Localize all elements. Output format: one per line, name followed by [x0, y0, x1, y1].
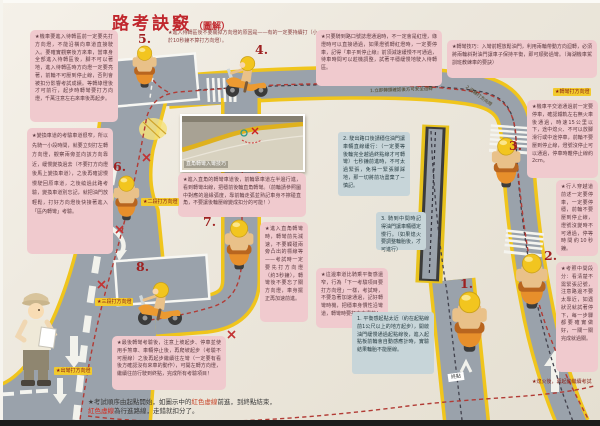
- label-signal-turn3: ★出彎打方向燈: [54, 367, 92, 375]
- scan-edge-top: [0, 0, 600, 3]
- page-title-main: 路考訣竅: [112, 14, 192, 34]
- note-balance-step3: 3. 騎到中間時記得油門讓車輛穩定慢行。（如果熄火要調整輪胎後，才可進行）: [376, 212, 426, 250]
- note-waiting-zone: ★機車要進入待轉區前一定要先打方向燈，不能沿橫向車道直接駛入。要確實觀察後方來車…: [30, 30, 118, 122]
- station-5: 5.: [138, 31, 151, 46]
- station-8: 8.: [136, 259, 149, 274]
- footer-note: ★考試順序由起點開始，如圖示中的紅色虛線前進，到終點結束， 紅色虛線為行進路線，…: [88, 398, 276, 417]
- scan-edge-left: [0, 0, 3, 426]
- note-balance-step1: 1. 平衡感起點太近（約在起點線前1公尺以上的地方起步），開啟油門緩慢通過起點線…: [352, 312, 434, 374]
- photo-inset-title: 直角轉彎入彎技巧: [184, 161, 228, 168]
- note-turning-technique: ★轉彎技巧：入彎前輕放鬆油門，利用兩輪帶動方向迴轉，必須將兩輪斜對油門讓車子保持…: [447, 40, 597, 78]
- footer-line-1: ★考試順序由起點開始，如圖示中的紅色虛線前進，到終點結束，: [88, 398, 276, 407]
- station-4: 4.: [255, 42, 268, 57]
- station-2: 2.: [544, 248, 557, 263]
- station-1: 1.: [460, 276, 473, 291]
- note-photo-caption: ★進入直角的轉彎車道後，前輪靠車道左半邊行進，看到轉彎出線，把穩前後輪直角轉彎。…: [178, 173, 306, 217]
- label-signal-top-right: ★轉彎打方向燈: [553, 88, 591, 96]
- note-traffic-light: ★只要騎到路口號誌燈通過時，不一定會是紅燈，綠燈時可以直接通過，如果燈號轉紅燈時…: [316, 30, 442, 86]
- footer-line-2: 紅色虛線為行進路線，走錯就扣分了。: [88, 407, 276, 416]
- balance-beam: [415, 125, 449, 284]
- page-title: 路考訣竅（圖解）: [112, 9, 230, 34]
- label-restart-note: ★熄火後，再起動繼續考試: [532, 378, 591, 385]
- note-railway-crossing: ★機車平交道通過前一定要停車，確認鐵軌左右無火車後通過，時速15公里以下，途中熄…: [527, 100, 598, 178]
- note-balance-step2: 2. 駛出路口後請穩住油門讓車輛直線緩行：（一定要等後輪完全越過終點線才可轉彎）…: [338, 132, 410, 196]
- footer-1b: 紅色虛線: [191, 398, 217, 406]
- station-3: 3.: [509, 138, 522, 153]
- footer-2b: 為行進路線，走錯就扣分了。: [114, 407, 199, 415]
- note-pedestrian-crossing: ★行人穿越道前述一定要停車，一定要停穩，前輪不要壓到停止線，燈號沒變時不可通過，…: [556, 180, 598, 256]
- footer-1c: 前進，到終點結束，: [217, 398, 276, 406]
- label-signal-turn2: ★三段打方向燈: [95, 298, 133, 306]
- page-title-sub: （圖解）: [194, 22, 230, 32]
- photo-inset: 直角轉彎入彎技巧: [180, 114, 305, 172]
- note-exam-middle: ★考照中間段分：看清楚不需緊張記號，注意路邊不要太靠近，如遇狀況就試著停下，每一…: [556, 262, 598, 372]
- note-final-turn: ★最後轉彎考驗後，注意上坡起步、停車並使用手煞車、車輛停止後，再爬坡起步（考驗不…: [112, 336, 226, 390]
- footer-1a: ★考試順序由起點開始，如圖示中的: [88, 398, 191, 406]
- station-7: 7.: [203, 214, 216, 229]
- note-right-angle-turn: ★進入直角轉彎時，轉彎前先減速，不要觸碰兩旁凸出的標線等——考試時一定要先打方向…: [260, 222, 308, 322]
- note-lane-change-left: ★變換車道的考驗車道很窄，所以先騎一小段時間，就要立刻打左轉方向燈，觀察兩旁並向…: [27, 128, 113, 254]
- station-6: 6.: [113, 159, 126, 174]
- footer-2a: 紅色虛線: [88, 407, 114, 415]
- scan-edge-bottom: [0, 420, 600, 426]
- road-test-diagram: 直角轉彎入彎技巧 路考訣竅（圖解） ★機車要進入待轉區前一定要先打方向燈，不能沿…: [0, 0, 600, 426]
- label-signal-turn1: ★二段打方向燈: [141, 198, 179, 206]
